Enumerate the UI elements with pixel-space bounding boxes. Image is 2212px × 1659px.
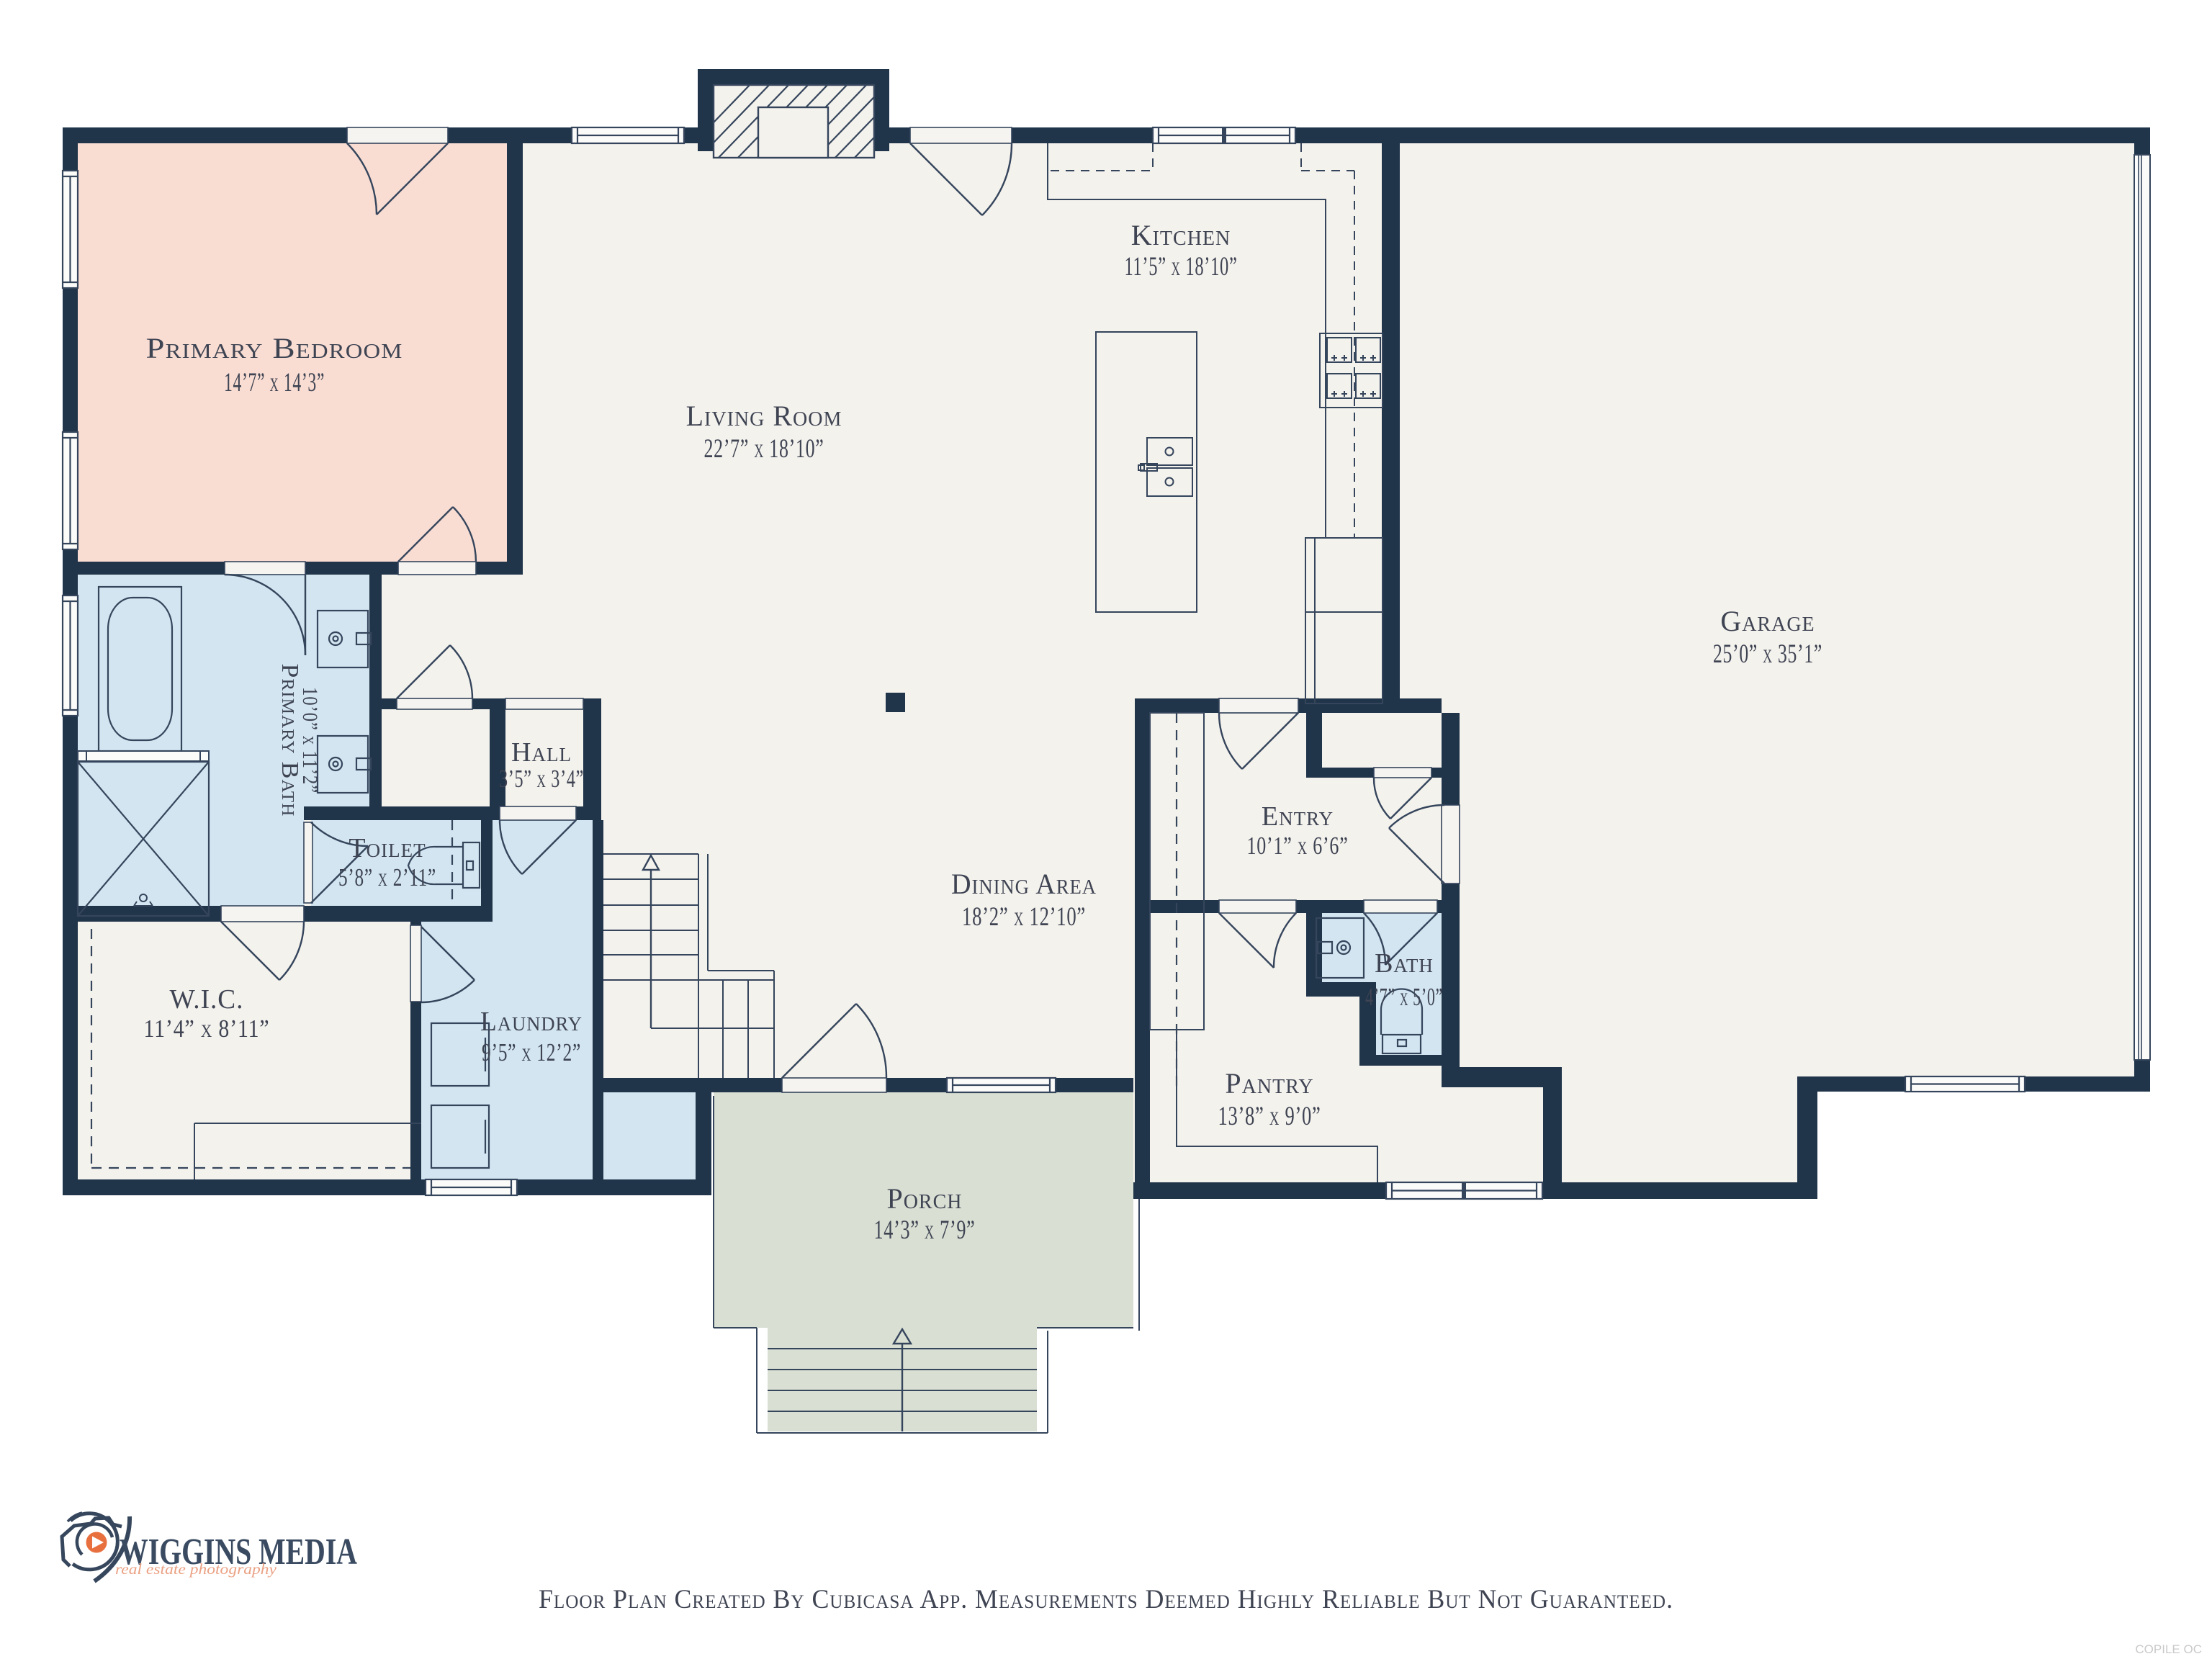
svg-text:18’2” x 12’10”: 18’2” x 12’10”: [962, 902, 1086, 932]
svg-text:11’5” x 18’10”: 11’5” x 18’10”: [1125, 252, 1238, 282]
svg-text:22’7” x 18’10”: 22’7” x 18’10”: [704, 434, 824, 464]
svg-text:Pantry: Pantry: [1225, 1067, 1313, 1100]
svg-text:Entry: Entry: [1262, 801, 1334, 832]
svg-text:Kitchen: Kitchen: [1131, 219, 1231, 251]
svg-text:W.I.C.: W.I.C.: [170, 984, 244, 1015]
svg-text:4’7” x 5’0”: 4’7” x 5’0”: [1365, 983, 1443, 1011]
svg-text:Floor Plan Created By Cubicasa: Floor Plan Created By Cubicasa App. Meas…: [539, 1585, 1673, 1614]
svg-text:9’5” x 12’2”: 9’5” x 12’2”: [482, 1038, 581, 1066]
svg-text:10’0” x 11’2”: 10’0” x 11’2”: [298, 687, 322, 793]
svg-text:Dining Area: Dining Area: [951, 868, 1097, 900]
svg-text:Living Room: Living Room: [686, 400, 842, 432]
svg-text:10’1” x 6’6”: 10’1” x 6’6”: [1247, 832, 1349, 860]
svg-text:Bath: Bath: [1375, 948, 1434, 979]
svg-text:Porch: Porch: [886, 1182, 962, 1215]
svg-text:Hall: Hall: [511, 737, 572, 768]
svg-text:11’4” x 8’11”: 11’4” x 8’11”: [144, 1015, 270, 1043]
svg-text:COPILE OC: COPILE OC: [2135, 1642, 2202, 1656]
svg-text:3’5” x 3’4”: 3’5” x 3’4”: [499, 765, 584, 793]
svg-text:14’3” x 7’9”: 14’3” x 7’9”: [874, 1215, 976, 1245]
svg-text:25’0” x 35’1”: 25’0” x 35’1”: [1713, 639, 1822, 669]
svg-text:Garage: Garage: [1720, 605, 1815, 637]
svg-text:Toilet: Toilet: [349, 833, 426, 863]
svg-text:13’8” x 9’0”: 13’8” x 9’0”: [1218, 1102, 1321, 1131]
svg-text:Primary Bedroom: Primary Bedroom: [146, 332, 403, 364]
svg-text:5’8” x 2’11”: 5’8” x 2’11”: [338, 863, 436, 891]
svg-text:real estate photography: real estate photography: [115, 1560, 277, 1578]
svg-text:14’7” x 14’3”: 14’7” x 14’3”: [224, 368, 325, 397]
svg-text:Laundry: Laundry: [480, 1007, 583, 1037]
